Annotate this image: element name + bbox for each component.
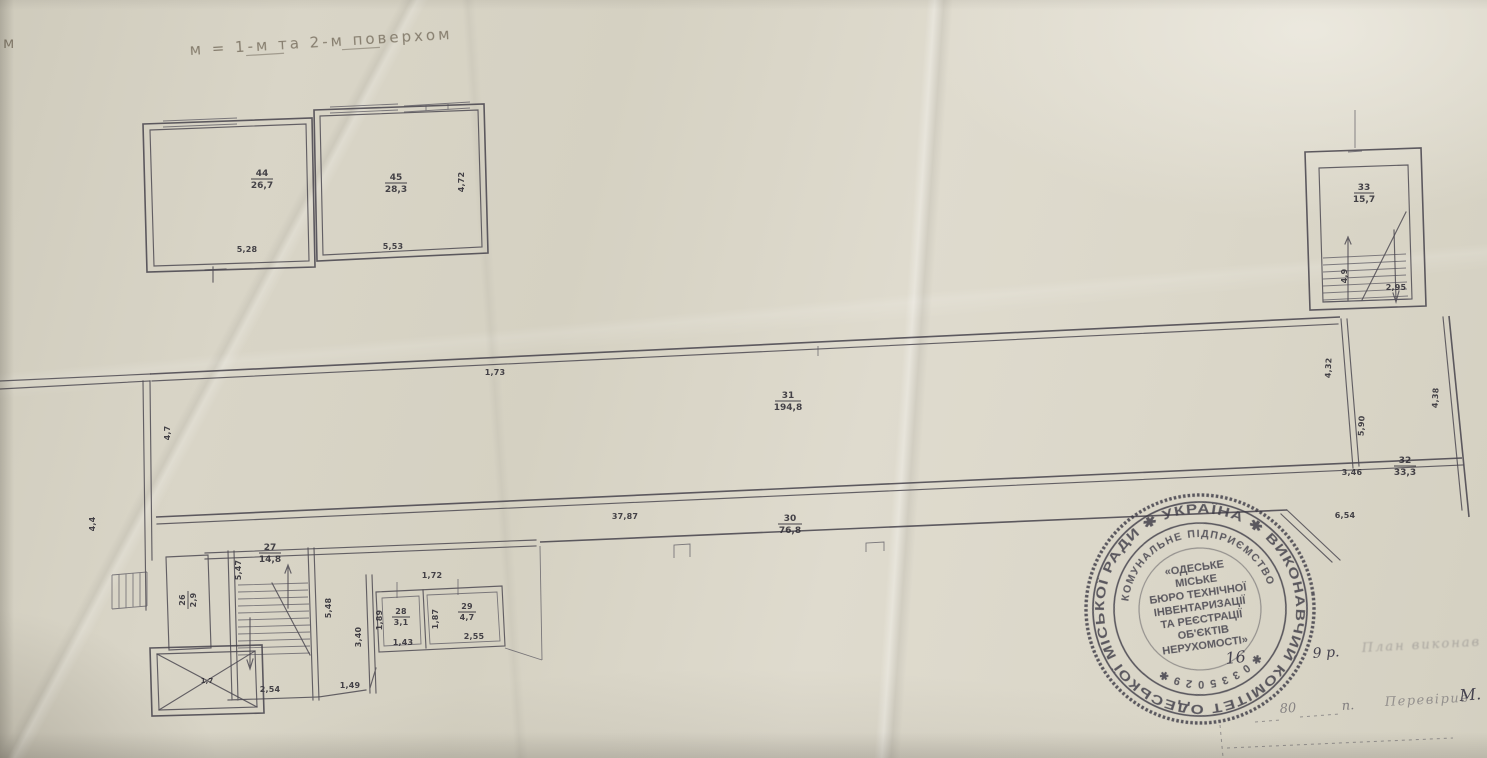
room-area: 3,1 (394, 618, 409, 627)
dim-5-47: 5,47 (234, 560, 243, 581)
mezz-room-44-label: 44 26,7 (251, 169, 273, 191)
floorplan-drawing: м м = 1-м та 2-м поверхом 44 26,7 45 28,… (0, 0, 1487, 758)
hall-31-label: 31 194,8 (774, 391, 802, 413)
room-number: 28 (395, 607, 407, 616)
room-number: 32 (1399, 456, 1412, 466)
dim-4-38: 4,38 (1430, 387, 1440, 408)
room-33-label: 33 15,7 (1353, 183, 1375, 205)
room-26-label: 26 2,9 (178, 591, 198, 609)
dim-1-89: 1,89 (375, 610, 384, 631)
room-number: 31 (782, 391, 795, 401)
room-area: 26,7 (251, 181, 273, 191)
room-area: 14,8 (259, 555, 281, 565)
dim-5-48: 5,48 (324, 598, 333, 619)
room-area: 15,7 (1353, 195, 1375, 205)
corner-mark: м (3, 34, 17, 52)
dim-3-46: 3,46 (1342, 468, 1363, 477)
room-area: 28,3 (385, 185, 407, 195)
corridor-30-label: 30 76,8 (778, 514, 802, 536)
dim-5-28: 5,28 (237, 245, 258, 254)
rooms-divider (423, 590, 426, 648)
form-dashes-vertical (1220, 725, 1223, 757)
room-number: 30 (784, 514, 797, 524)
stair-block-top-tick (1348, 110, 1362, 152)
room-area: 2,9 (189, 592, 198, 607)
mezz-left-room-inner-wall (150, 124, 309, 266)
room-number: 27 (264, 543, 277, 553)
dim-37-87: 37,87 (612, 512, 638, 521)
right-outer-wall (1449, 316, 1469, 517)
room-29-label: 29 4,7 (458, 602, 476, 622)
dim-1-49: 1,49 (340, 681, 361, 690)
bottom-left-block: 26 2,9 27 14,8 5,47 2,54 1,7 5,48 3,40 1… (112, 540, 542, 716)
handwritten-year: 9 р. (1312, 644, 1340, 662)
mezz-door-mark (205, 267, 226, 282)
stamp-center-text: «ОДЕСЬКЕ МІСЬКЕ БЮРО ТЕХНІЧНОЇ ІНВЕНТАРИ… (1145, 556, 1255, 659)
dim-5-90: 5,90 (1356, 415, 1366, 436)
dim-3-40: 3,40 (354, 627, 363, 648)
room-number: 26 (178, 594, 187, 606)
strip-walls (319, 575, 376, 697)
hall-bottom-outer (156, 458, 1462, 517)
handwritten-80: 80 (1279, 701, 1297, 717)
mezzanine-plan: 44 26,7 45 28,3 5,28 5,53 4,72 (143, 102, 488, 282)
room-area: 4,7 (460, 613, 475, 622)
dim-6-54: 6,54 (1335, 511, 1356, 520)
section-32-divider-wall (1341, 319, 1359, 468)
dim-1-73: 1,73 (485, 368, 506, 377)
left-window-hatch (112, 572, 147, 609)
dim-1-72: 1,72 (422, 571, 443, 580)
form-dashes-long (1227, 738, 1453, 748)
handwritten-16: 16 (1224, 647, 1246, 668)
dim-4-72: 4,72 (457, 172, 466, 193)
hall-top-outer (150, 317, 1340, 374)
left-outer-wall (143, 381, 152, 610)
room-28-label: 28 3,1 (392, 607, 410, 627)
form-checked-label: Перевірив (1383, 691, 1469, 710)
room-27-label: 27 14,8 (259, 543, 281, 565)
dim-4-9: 4,9 (1340, 268, 1349, 283)
dim-1-87: 1,87 (431, 609, 440, 630)
sheet-title: м = 1-м та 2-м поверхом (189, 25, 453, 59)
sheet-title-text: м = 1-м та 2-м поверхом (189, 25, 453, 59)
dim-2-95: 2,95 (1386, 283, 1407, 292)
hall-bottom-inner (157, 465, 1463, 524)
room-area: 33,3 (1394, 468, 1416, 478)
corridor-end-diagonal (1281, 510, 1340, 562)
form-label-faded: План виконав (1360, 635, 1481, 656)
dim-1-43: 1,43 (393, 638, 414, 647)
room-number: 45 (390, 173, 403, 183)
room-area: 76,8 (779, 526, 801, 536)
mezz-room-45-label: 45 28,3 (385, 173, 407, 195)
room-area: 194,8 (774, 403, 802, 413)
block-top-wall (205, 540, 536, 559)
dim-2-55: 2,55 (464, 632, 485, 641)
dim-4-32: 4,32 (1323, 357, 1333, 378)
staircase-top-right: 33 15,7 2,95 4,9 (1305, 110, 1426, 310)
corridor-door-marks (674, 542, 884, 558)
mezz-left-room-outer-wall (143, 118, 315, 272)
form-p-abbrev: п. (1341, 698, 1355, 714)
scanned-floorplan-photo: м м = 1-м та 2-м поверхом 44 26,7 45 28,… (0, 0, 1487, 758)
hall-top-inner (152, 324, 1338, 381)
room-number: 33 (1358, 183, 1371, 193)
room-number: 29 (461, 602, 473, 611)
dim-4-7: 4,7 (163, 426, 172, 441)
lift-label: 1,7 (201, 677, 214, 685)
room-number: 44 (256, 169, 269, 179)
handwritten-initial: М. (1458, 684, 1482, 705)
dim-5-53: 5,53 (383, 242, 404, 251)
left-continuation-walls (0, 374, 150, 389)
form-dashes-short (1255, 714, 1340, 722)
dim-4-4: 4,4 (88, 516, 97, 531)
bti-round-stamp: УКРАЇНА ✱ ВИКОНАВЧИЙ КОМІТЕТ ОДЕСЬКОЇ МІ… (1052, 461, 1348, 757)
main-building: 31 194,8 1,73 4,7 4,4 37,87 30 76,8 32 3… (0, 316, 1469, 610)
stair-treads-bottom (238, 583, 310, 655)
